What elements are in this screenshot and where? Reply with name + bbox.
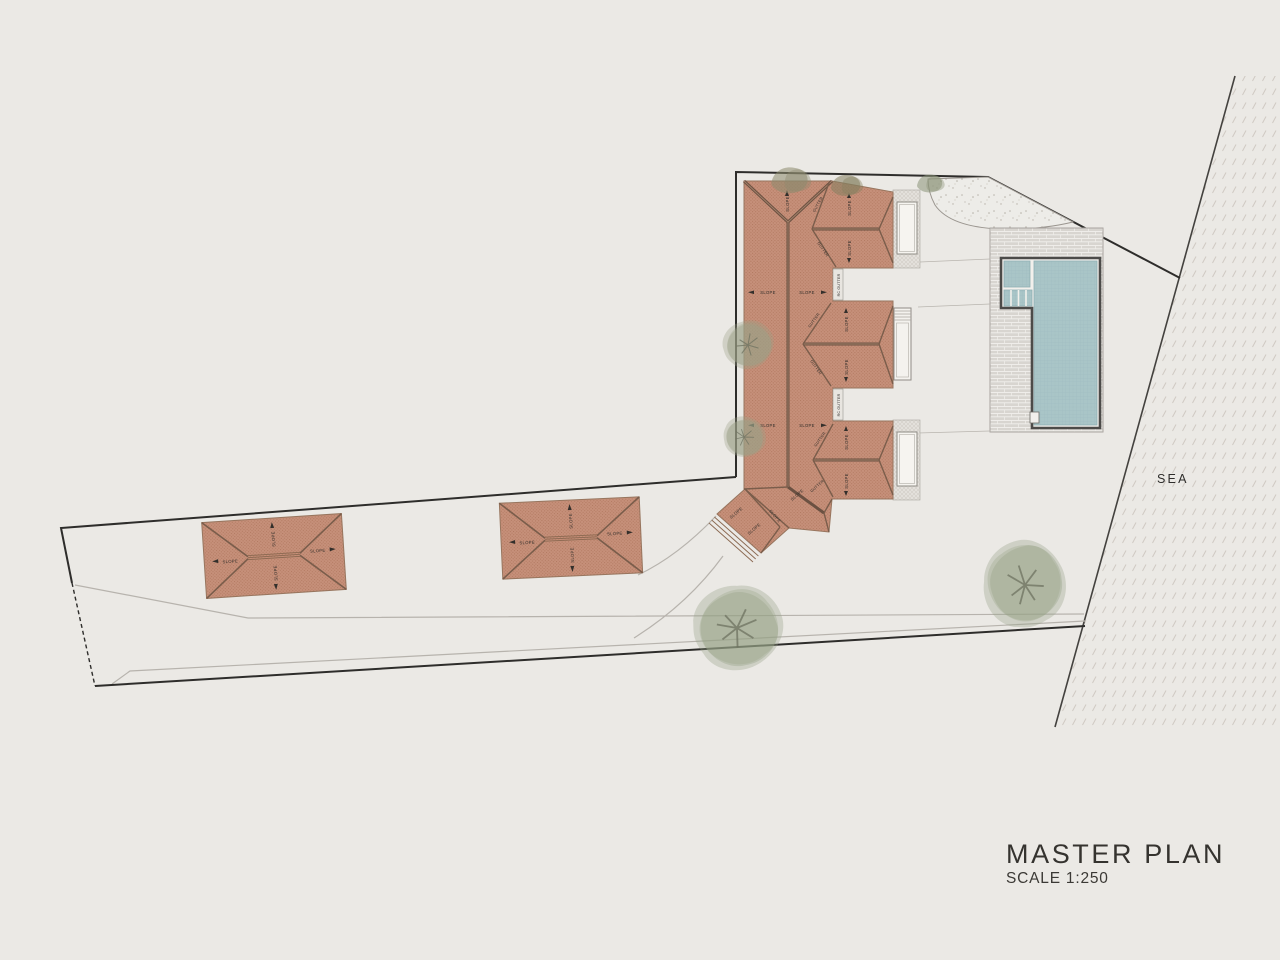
tree [970, 529, 1079, 640]
terraces [893, 190, 920, 500]
title-block: MASTER PLAN SCALE 1:250 [1006, 840, 1225, 888]
sea-label: SEA [1157, 472, 1189, 486]
rc-gutter-label: RC GUTTER [837, 273, 841, 296]
slope-label: SLOPE [222, 558, 238, 564]
terrace-3 [893, 420, 920, 500]
slope-label: SLOPE [568, 513, 574, 529]
slope-label: SLOPE [607, 531, 623, 537]
terrace-2 [894, 308, 911, 380]
slope-label: SLOPE [273, 565, 279, 581]
slope-label: SLOPE [799, 423, 814, 428]
tree [683, 574, 792, 681]
rc-gutter-label: RC GUTTER [837, 393, 841, 416]
site-plan-svg: SEA [0, 0, 1280, 960]
slope-label: SLOPE [785, 196, 790, 211]
kids-pool [1004, 261, 1030, 287]
scale-label: SCALE 1:250 [1006, 870, 1225, 888]
slope-label: SLOPE [569, 547, 575, 563]
slope-label: SLOPE [847, 240, 852, 255]
annex-building-a: SLOPE SLOPE SLOPE SLOPE [202, 514, 347, 599]
shrub [831, 175, 863, 196]
walkway-lines [918, 259, 990, 433]
boundary-dashed-segment [72, 583, 95, 686]
master-plan-title: MASTER PLAN [1006, 840, 1225, 868]
main-pool [1034, 261, 1097, 425]
sand-area [928, 177, 1073, 229]
pool-skimmer [1030, 412, 1039, 423]
slope-label: SLOPE [847, 200, 852, 215]
terrace-1 [893, 190, 920, 268]
slope-label: SLOPE [519, 540, 535, 546]
slope-label: SLOPE [310, 548, 326, 554]
slope-label: SLOPE [270, 531, 276, 547]
pool-terrace [990, 228, 1103, 432]
slope-label: SLOPE [799, 290, 814, 295]
slope-label: SLOPE [844, 473, 849, 488]
master-plan-sheet: SEA [0, 0, 1280, 960]
slope-label: SLOPE [760, 290, 775, 295]
shrub [771, 167, 811, 193]
slope-label: SLOPE [844, 316, 849, 331]
slope-label: SLOPE [844, 434, 849, 449]
slope-label: SLOPE [844, 359, 849, 374]
annex-building-b: SLOPE SLOPE SLOPE SLOPE [499, 497, 642, 579]
shrub [917, 175, 945, 193]
